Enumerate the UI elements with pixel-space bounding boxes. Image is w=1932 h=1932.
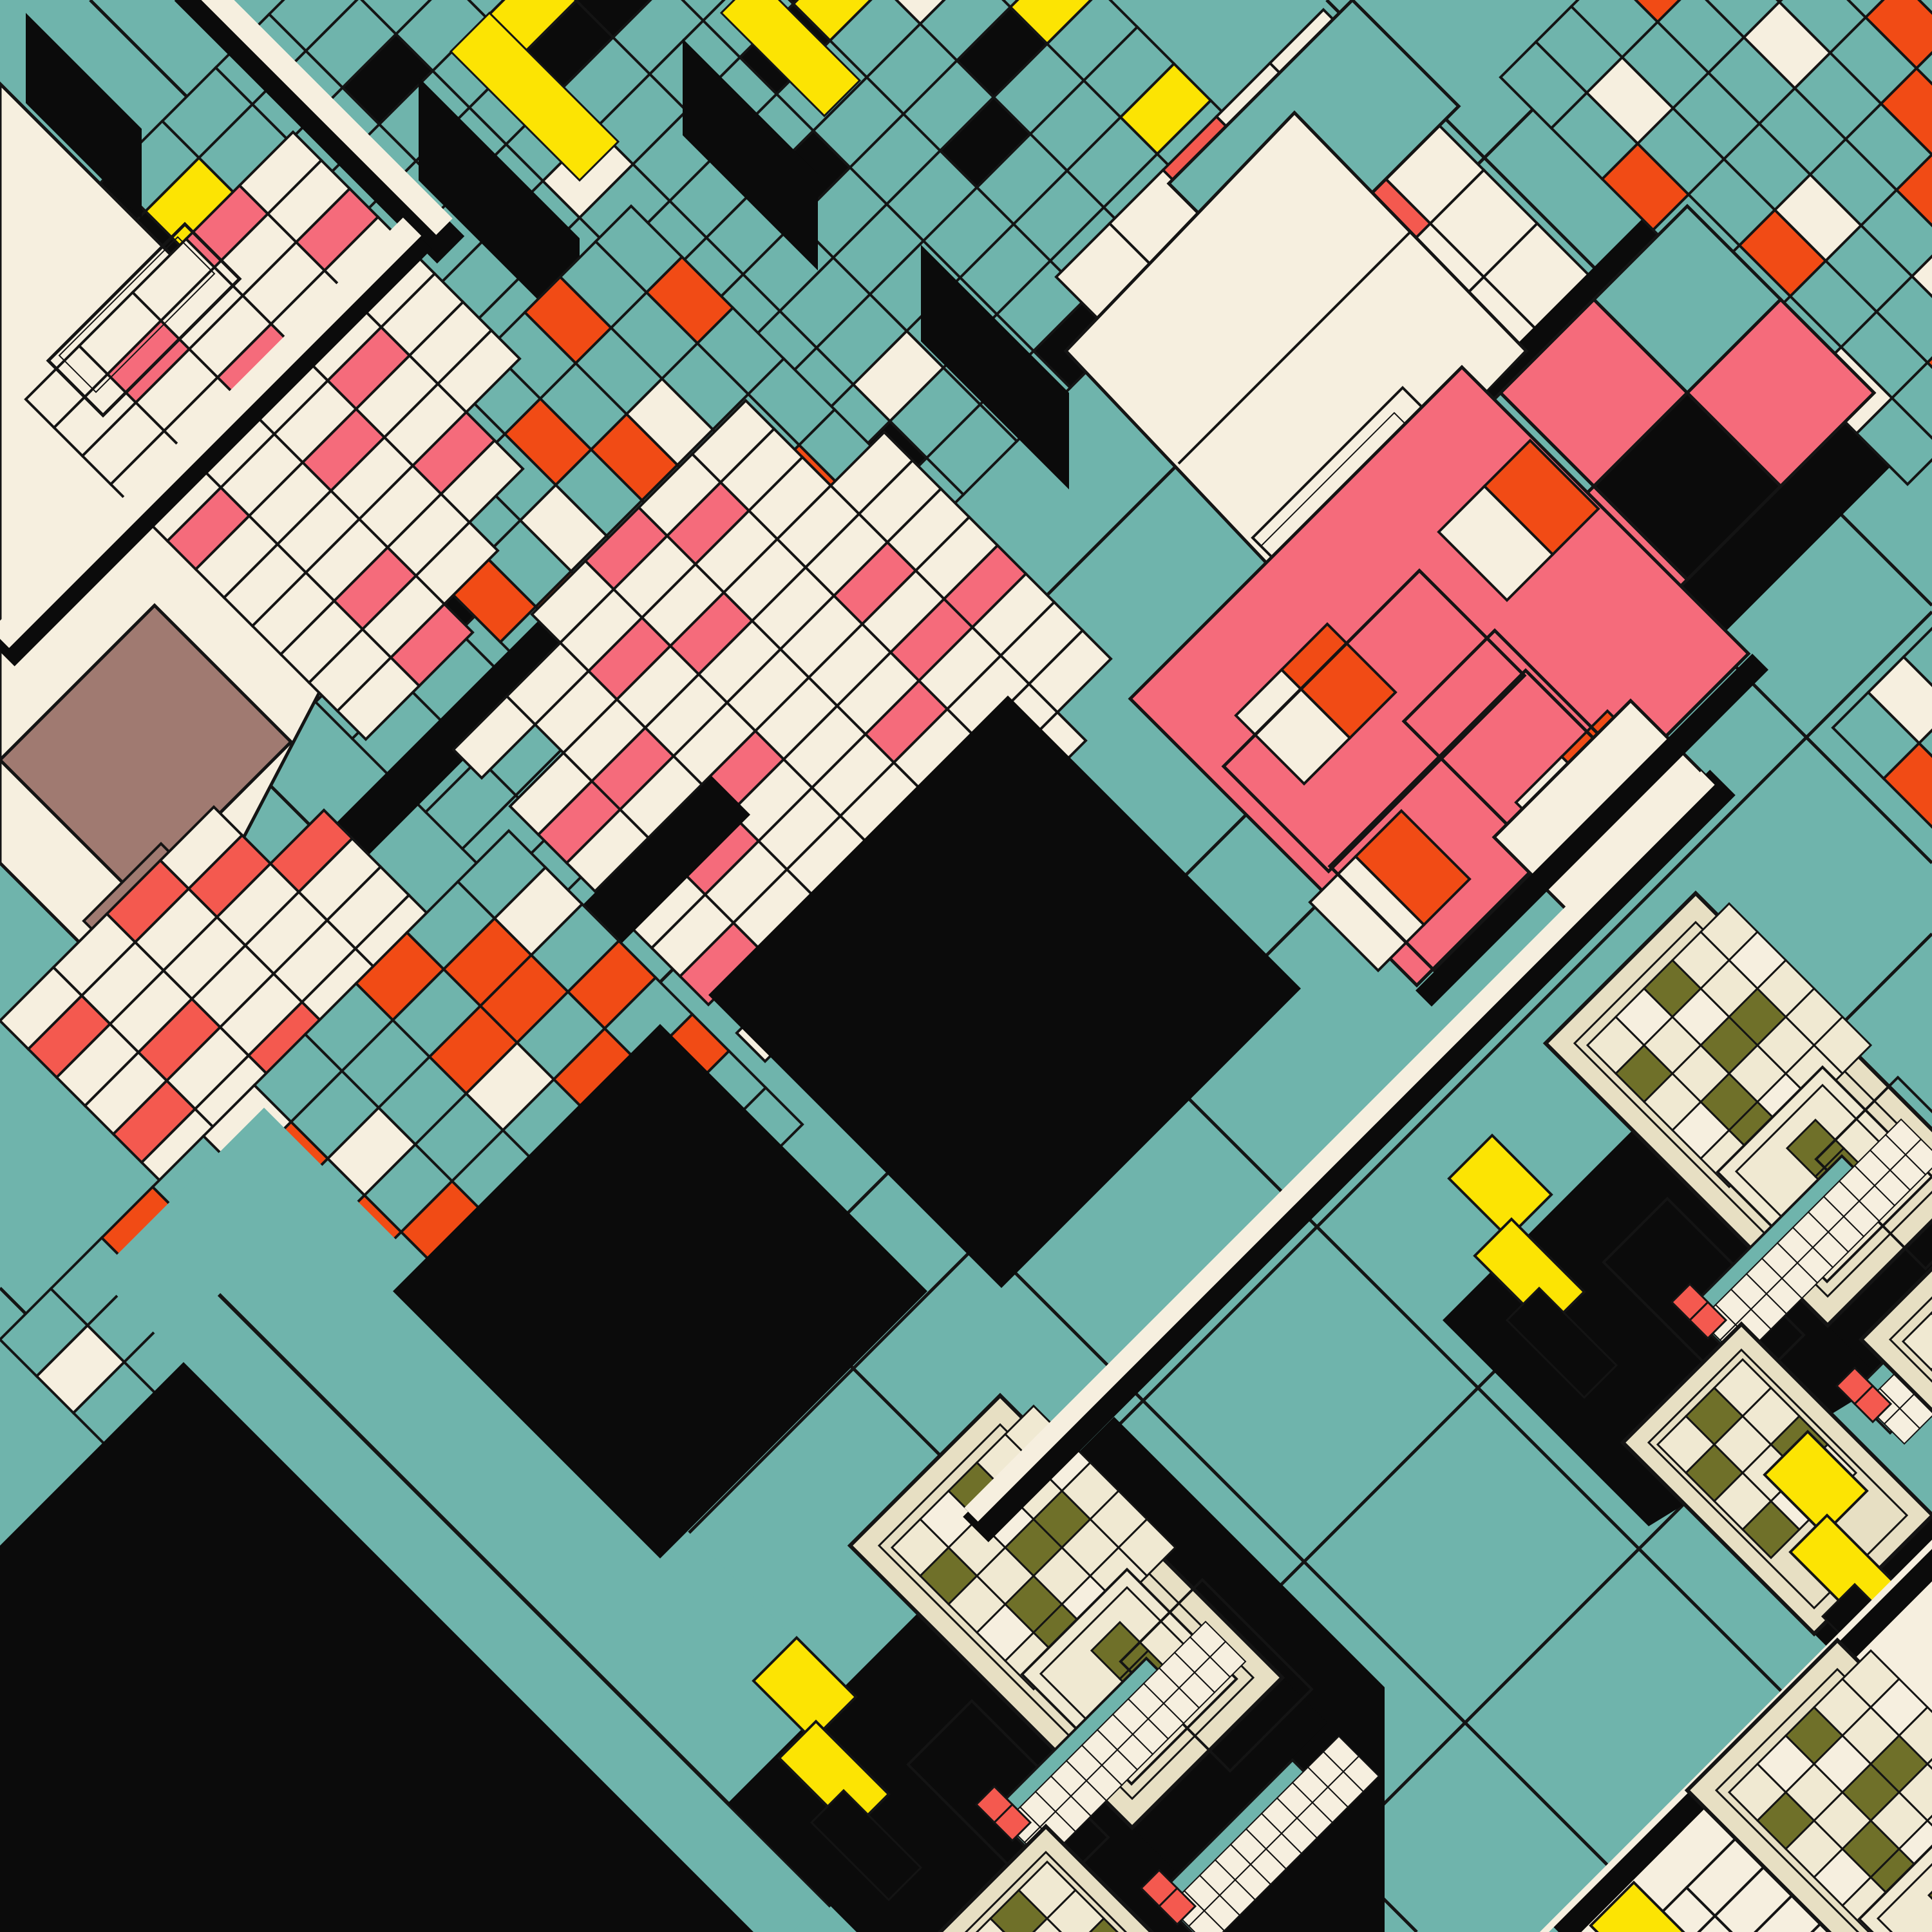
generative-artwork (0, 0, 1932, 1932)
artwork-stage (0, 0, 1932, 1932)
